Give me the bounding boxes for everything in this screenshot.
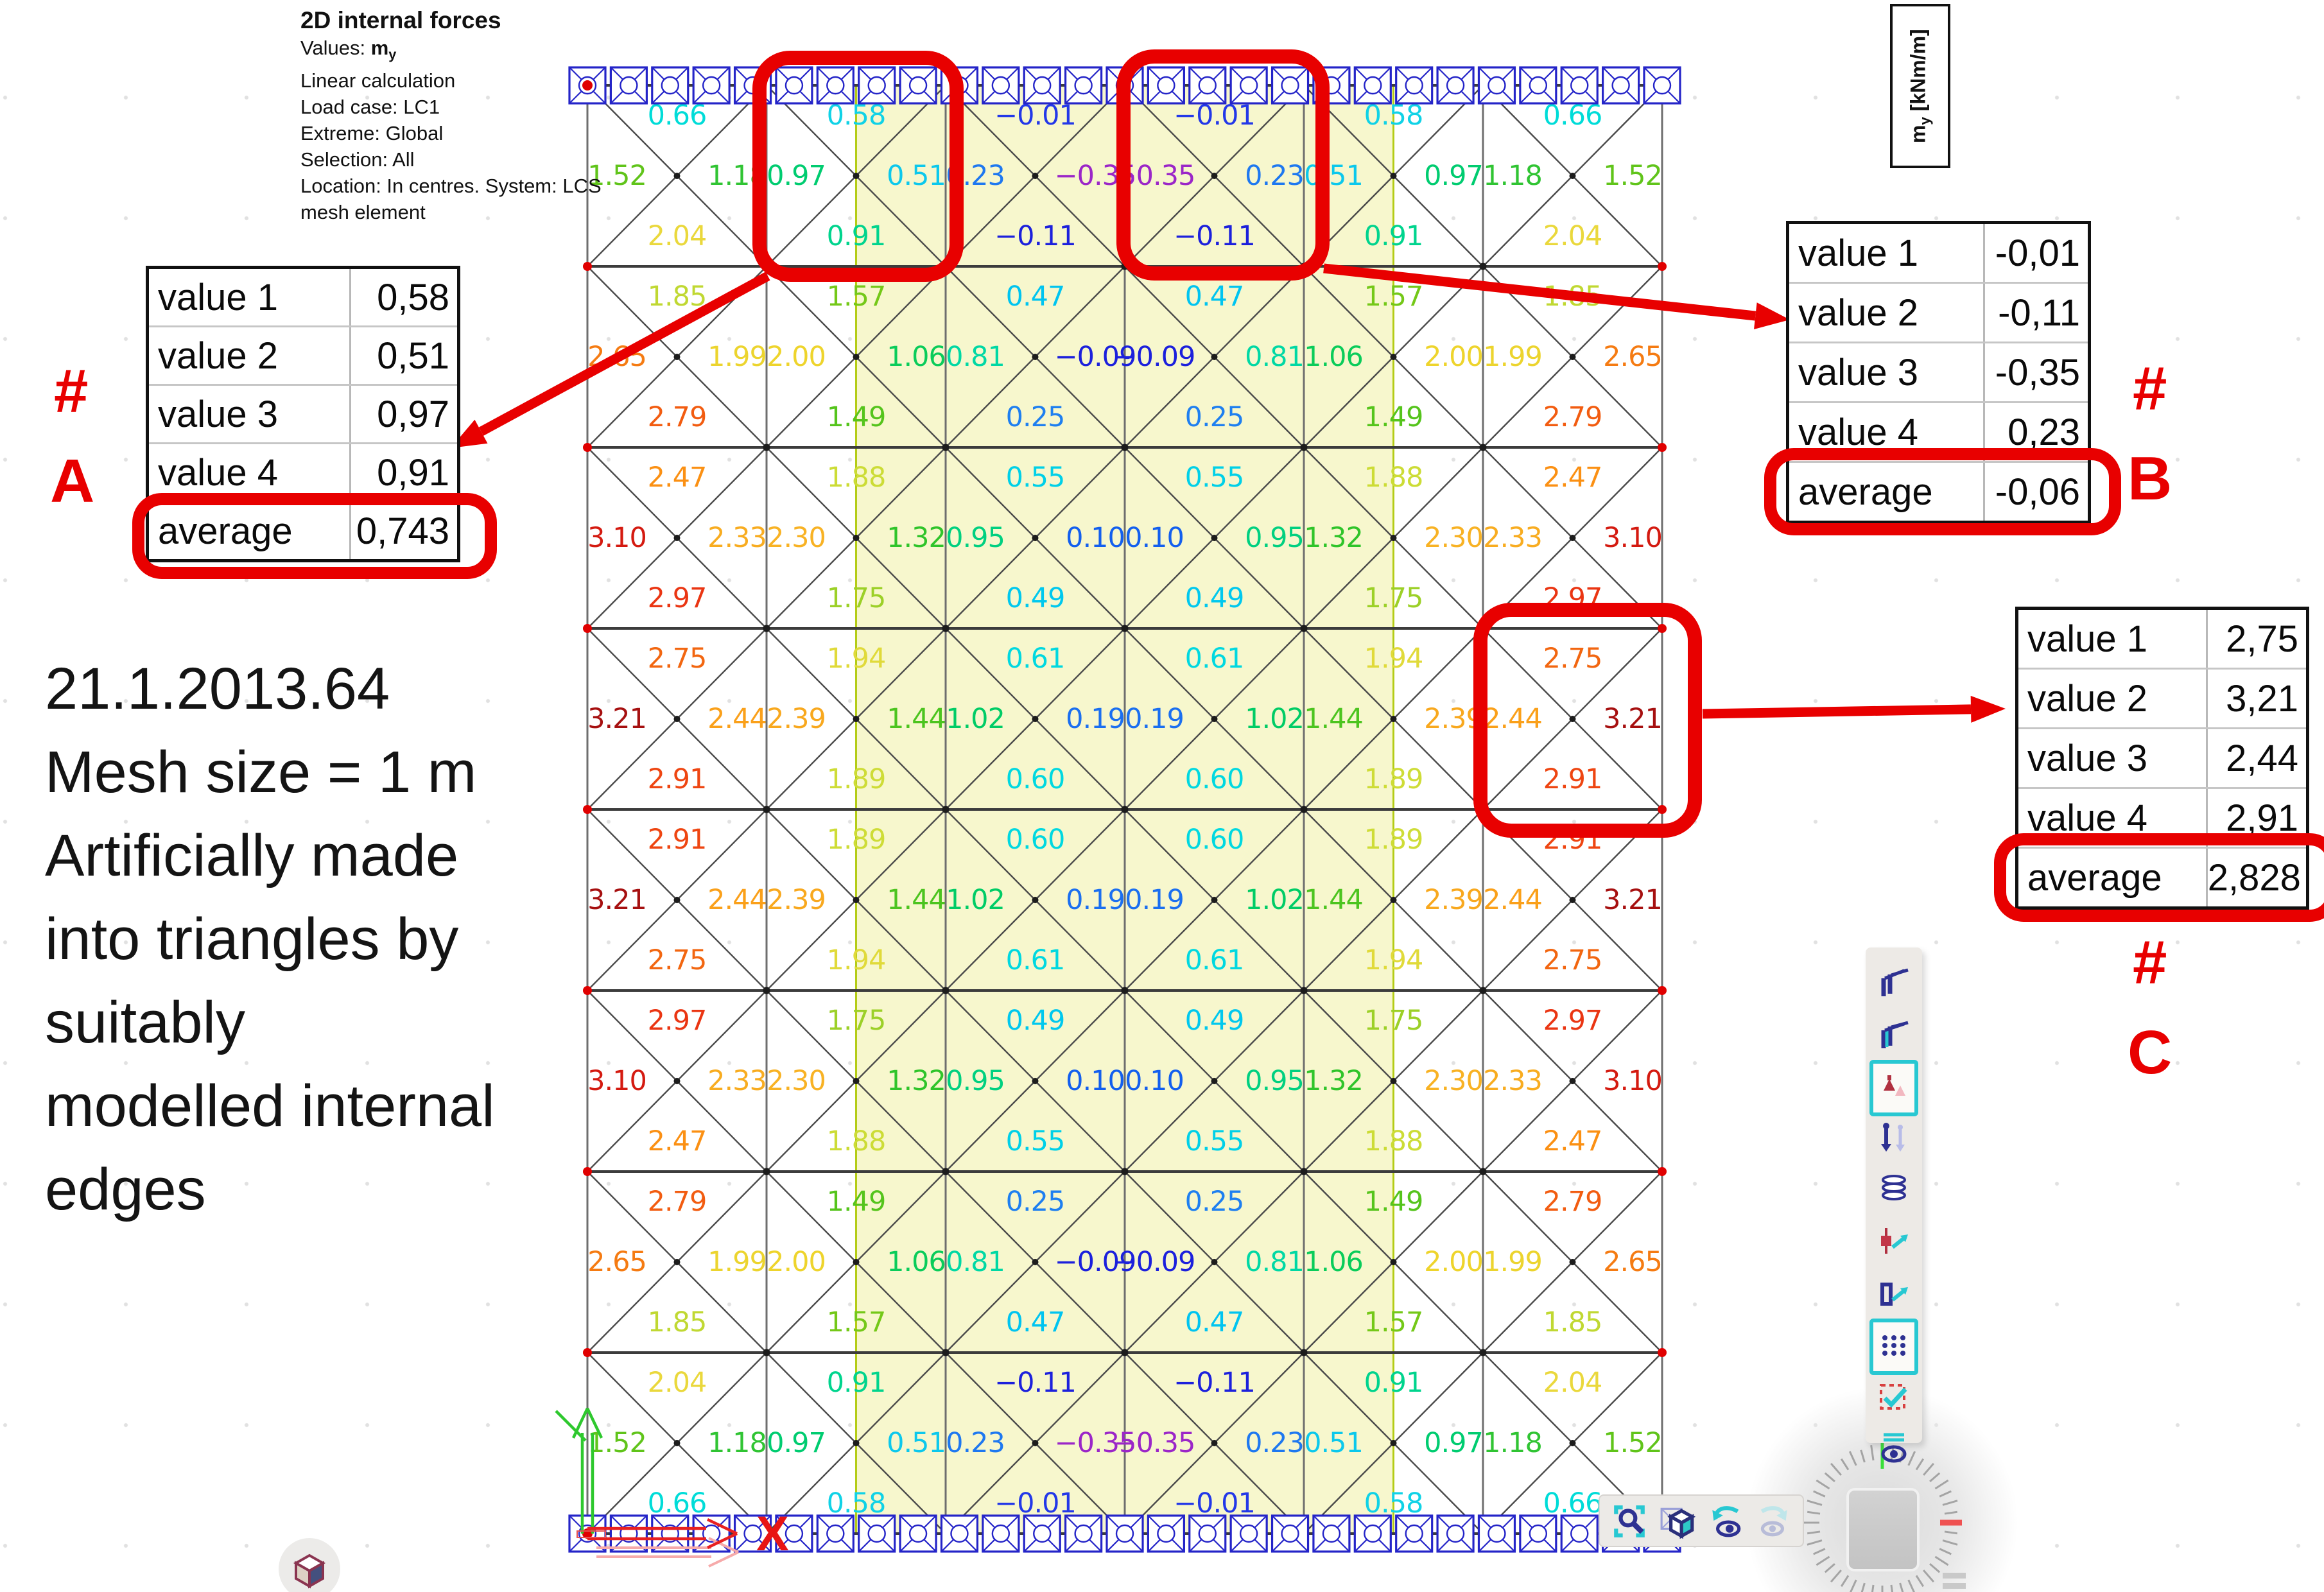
edge-node	[1658, 805, 1667, 814]
mesh-value: 1.99	[1483, 341, 1542, 373]
mesh-node	[674, 354, 681, 360]
mesh-value: 1.89	[1364, 763, 1423, 795]
mesh-value: 0.60	[1185, 763, 1244, 795]
load-arrows-icon[interactable]	[1876, 1120, 1912, 1155]
wheel-tick	[1945, 1532, 1957, 1534]
mesh-node	[674, 173, 681, 179]
line-support-icon	[652, 1516, 688, 1552]
mesh-value: 0.47	[1185, 1306, 1244, 1338]
edge-node	[583, 262, 592, 271]
mesh-node	[1301, 625, 1308, 632]
mesh-value: 2.79	[648, 1186, 707, 1218]
mesh-value: 0.19	[1066, 703, 1125, 735]
line-support-icon	[1437, 67, 1473, 103]
redo-eye-icon[interactable]	[1755, 1502, 1792, 1539]
edge-node	[583, 624, 592, 633]
table-row: value 20,51	[149, 325, 457, 384]
mesh-value: 0.51	[887, 160, 946, 192]
line-support-icon	[776, 67, 812, 103]
mesh-value: −0.09	[1114, 1246, 1195, 1278]
mesh-value: 1.18	[1483, 1427, 1542, 1459]
mesh-value: 1.06	[1304, 341, 1363, 373]
mesh-value: 0.81	[946, 1246, 1005, 1278]
mesh-value: 2.75	[1543, 944, 1602, 976]
value-cell: -0,11	[1985, 284, 2088, 342]
mesh-node	[1122, 987, 1129, 994]
value-cell: 0,97	[351, 386, 457, 442]
right-toolbar	[1866, 947, 1922, 1443]
mesh-value: 1.49	[827, 401, 886, 433]
mesh-value: 0.61	[1185, 944, 1244, 976]
marker-hash-b: #	[2133, 357, 2167, 421]
mesh-value: 0.49	[1006, 582, 1065, 614]
mesh-value: 0.51	[1304, 160, 1363, 192]
mesh-value: 1.57	[1364, 1306, 1423, 1338]
value-label-cell: value 2	[1789, 284, 1985, 342]
mesh-value: 2.33	[707, 522, 767, 554]
selection-check-icon[interactable]	[1876, 1378, 1912, 1414]
edge-node	[1658, 262, 1667, 271]
mesh-node	[1570, 716, 1576, 722]
mesh-value: 0.81	[946, 341, 1005, 373]
mesh-value: 1.85	[648, 281, 707, 313]
layers-icon[interactable]	[1876, 1171, 1912, 1207]
cube-3d-icon[interactable]	[1659, 1502, 1696, 1539]
mesh-node	[1391, 535, 1397, 541]
beam-profile-icon[interactable]	[1876, 964, 1912, 1000]
mesh-value: 3.10	[587, 522, 646, 554]
mesh-value: 2.00	[1424, 1246, 1483, 1278]
mesh-value: 2.30	[1424, 1065, 1483, 1097]
marker-letter-a: A	[50, 449, 94, 514]
edge-node	[583, 443, 592, 452]
mesh-value: 1.57	[827, 1306, 886, 1338]
mesh-node	[1122, 625, 1129, 632]
line-support-icon	[817, 67, 853, 103]
mesh-value: 2.79	[648, 401, 707, 433]
line-support-icon	[1272, 67, 1308, 103]
mesh-value: 0.97	[1424, 1427, 1483, 1459]
mesh-node	[1032, 1259, 1039, 1265]
mesh-value: 2.00	[767, 1246, 826, 1278]
mesh-value: 1.02	[946, 703, 1005, 735]
scrollbar-fragment[interactable]	[1943, 1583, 1966, 1589]
mesh-value: 2.44	[707, 703, 767, 735]
value-label-cell: value 3	[149, 386, 351, 442]
mesh-value: 2.30	[767, 1065, 826, 1097]
mesh-value: 2.39	[767, 703, 826, 735]
mesh-node	[853, 354, 860, 360]
mesh-value: 0.95	[1245, 1065, 1304, 1097]
value-cell: -0,01	[1985, 224, 2088, 282]
mesh-value: 2.97	[648, 1005, 707, 1037]
mesh-value: 3.21	[587, 703, 646, 735]
mesh-value: 2.04	[648, 220, 707, 252]
table-row: value 30,97	[149, 384, 457, 442]
table-row: value 2-0,11	[1789, 282, 2088, 342]
table-row: value 10,58	[149, 269, 457, 325]
mesh-value: 2.00	[767, 341, 826, 373]
value-label-cell: value 2	[2018, 670, 2208, 727]
mesh-value: 2.97	[1543, 1005, 1602, 1037]
mesh-node	[942, 1349, 950, 1356]
mesh-node	[1211, 716, 1218, 722]
mesh-value: 1.32	[887, 1065, 946, 1097]
mesh-value: 2.97	[648, 582, 707, 614]
mesh-value: 1.49	[1364, 1186, 1423, 1218]
mesh-value: 0.55	[1006, 1125, 1065, 1157]
mesh-value: 0.51	[1304, 1427, 1363, 1459]
mesh-value: 0.23	[1245, 1427, 1304, 1459]
support-icon[interactable]	[1876, 1068, 1912, 1103]
mesh-value: 0.61	[1006, 643, 1065, 675]
mesh-value: 0.97	[1424, 160, 1483, 192]
wheel-tick	[1939, 1491, 1951, 1496]
mesh-node	[1480, 1349, 1487, 1356]
visibility-icon[interactable]	[1876, 1430, 1912, 1466]
mesh-value: −0.11	[1174, 220, 1255, 252]
mesh-value: 1.02	[1245, 703, 1304, 735]
mesh-node	[763, 1349, 770, 1356]
mesh-value: 1.88	[827, 462, 886, 494]
mesh-value: 3.10	[1603, 1065, 1662, 1097]
mesh-value: 2.75	[1543, 643, 1602, 675]
line-support-icon	[1355, 1516, 1391, 1552]
mesh-value: 0.25	[1006, 1186, 1065, 1218]
results-values-line: Values: my	[300, 35, 602, 67]
edge-node	[583, 1167, 592, 1176]
average-highlight-ring-a	[132, 493, 497, 579]
mesh-value: 0.95	[1245, 522, 1304, 554]
wheel-tick	[1850, 1580, 1856, 1592]
edge-node	[1658, 1348, 1667, 1357]
edge-node	[583, 986, 592, 995]
scrollbar-fragment[interactable]	[1943, 1573, 1966, 1579]
mesh-value: 3.10	[1603, 522, 1662, 554]
mesh-node	[1122, 1349, 1129, 1356]
table-row: value 1-0,01	[1789, 224, 2088, 282]
edge-node	[1658, 624, 1667, 633]
mesh-node	[1391, 1440, 1397, 1446]
mesh-node	[1391, 716, 1397, 722]
axis-x-label: X	[756, 1506, 789, 1562]
mesh-value: 0.91	[827, 1367, 886, 1399]
mesh-value: 2.75	[648, 643, 707, 675]
mesh-node	[674, 1440, 681, 1446]
mesh-value: 2.33	[1483, 522, 1542, 554]
value-cell: 0,58	[351, 269, 457, 325]
mesh-node	[1211, 535, 1218, 541]
line-support-icon	[817, 1516, 853, 1552]
mesh-value: 1.49	[1364, 401, 1423, 433]
mesh-value: 1.94	[827, 643, 886, 675]
mesh-value: 1.94	[1364, 643, 1423, 675]
wheel-tick	[1916, 1575, 1923, 1586]
mesh-value: 1.88	[827, 1125, 886, 1157]
line-support-icon	[1272, 1516, 1308, 1552]
line-support-icon	[1396, 1516, 1432, 1552]
wheel-tick	[1850, 1451, 1856, 1466]
mesh-value: 2.91	[648, 763, 707, 795]
line-support-icon	[1024, 1516, 1060, 1552]
line-support-icon	[1437, 1516, 1473, 1552]
mesh-value: 0.97	[767, 160, 826, 192]
mesh-value: 0.10	[1066, 1065, 1125, 1097]
mesh-node	[763, 806, 770, 813]
mesh-value: −0.11	[994, 220, 1076, 252]
mesh-value: 2.79	[1543, 401, 1602, 433]
mesh-value: 0.81	[1245, 1246, 1304, 1278]
mesh-value: 2.75	[648, 944, 707, 976]
mesh-value: 1.94	[827, 944, 886, 976]
marker-letter-b: B	[2128, 447, 2172, 511]
results-line: Location: In centres. System: LCS	[300, 173, 602, 199]
mesh-node	[674, 716, 681, 722]
value-cell: 0,91	[351, 444, 457, 501]
mesh-node	[1480, 987, 1487, 994]
mesh-node	[1032, 354, 1039, 360]
wheel-tick	[1935, 1557, 1948, 1565]
mesh-value: 0.55	[1185, 462, 1244, 494]
wheel-tick	[1807, 1532, 1820, 1534]
results-line: Linear calculation	[300, 67, 602, 94]
mesh-value: 1.88	[1364, 1125, 1423, 1157]
mesh-node	[942, 806, 950, 813]
mesh-value: 0.60	[1185, 824, 1244, 856]
mesh-node	[1391, 897, 1397, 903]
mesh-node	[942, 625, 950, 632]
mesh-value: 1.32	[887, 522, 946, 554]
mesh-value: 0.60	[1006, 824, 1065, 856]
mesh-value: 0.81	[1245, 341, 1304, 373]
mesh-value: 1.85	[1543, 1306, 1602, 1338]
mesh-value: 2.33	[1483, 1065, 1542, 1097]
wheel-tick	[1807, 1541, 1822, 1545]
edge-node	[1658, 443, 1667, 452]
value-label-cell: value 1	[149, 269, 351, 325]
value-label-cell: value 4	[149, 444, 351, 501]
marker-letter-c: C	[2128, 1021, 2172, 1085]
line-support-icon	[1190, 1516, 1226, 1552]
mesh-value: 1.52	[1603, 1427, 1662, 1459]
wheel-center-handle[interactable]	[1849, 1491, 1917, 1569]
mesh-node	[1211, 173, 1218, 179]
line-support-icon	[941, 1516, 977, 1552]
mesh-node-icon[interactable]	[1876, 1223, 1912, 1259]
mesh-value: 1.06	[1304, 1246, 1363, 1278]
line-support-icon	[1066, 67, 1102, 103]
line-support-icon	[1520, 67, 1556, 103]
view-cube-icon	[287, 1546, 332, 1591]
line-support-icon	[1479, 1516, 1514, 1552]
mesh-value: 0.47	[1006, 281, 1065, 313]
mesh-node	[942, 987, 950, 994]
wheel-tick	[1930, 1473, 1939, 1482]
mesh-value: 3.21	[1603, 884, 1662, 916]
mesh-value: 0.60	[1006, 763, 1065, 795]
wheel-tick	[1814, 1549, 1825, 1554]
mesh-value: 1.75	[1364, 582, 1423, 614]
callout-arrow-c	[1703, 696, 2006, 723]
view-cube-button[interactable]	[279, 1538, 340, 1592]
zoom-selection-icon[interactable]	[1611, 1502, 1648, 1539]
mesh-node	[1480, 263, 1487, 270]
mesh-element-icon[interactable]	[1876, 1274, 1912, 1310]
mesh-value: −0.11	[1174, 1367, 1255, 1399]
mesh-value: 2.33	[707, 1065, 767, 1097]
mesh-node	[1391, 1259, 1397, 1265]
mesh-value: 0.19	[1125, 703, 1184, 735]
mesh-value: 2.00	[1424, 341, 1483, 373]
line-support-icon	[983, 1516, 1019, 1552]
mesh-node	[1301, 444, 1308, 451]
mesh-value: 1.32	[1304, 1065, 1363, 1097]
line-support-icon	[652, 67, 688, 103]
application-canvas: 0.661.521.182.040.580.970.510.91−0.010.2…	[0, 0, 2324, 1592]
line-support-icon	[1148, 1516, 1184, 1552]
mesh-value: 3.21	[1603, 703, 1662, 735]
mesh-value: 1.85	[648, 1306, 707, 1338]
wheel-tick	[1807, 1501, 1822, 1505]
mesh-node	[1211, 1259, 1218, 1265]
edge-node	[583, 1348, 592, 1357]
mesh-value: 2.47	[1543, 1125, 1602, 1157]
mesh-value: 3.21	[587, 884, 646, 916]
mesh-value: 2.44	[707, 884, 767, 916]
mesh-value: 2.30	[1424, 522, 1483, 554]
table-row: value 32,44	[2018, 727, 2306, 787]
wheel-tick	[1871, 1445, 1873, 1460]
wheel-tick	[1900, 1583, 1904, 1592]
view-toolbar	[1599, 1494, 1804, 1547]
mesh-node	[1032, 1078, 1039, 1084]
results-line: Selection: All	[300, 146, 602, 173]
slide-note: 21.1.2013.64Mesh size = 1 mArtificially …	[45, 647, 495, 1231]
wheel-tick	[1841, 1459, 1848, 1470]
mesh-value: 1.89	[827, 763, 886, 795]
mesh-value: 0.23	[1245, 160, 1304, 192]
line-support-icon	[1561, 1516, 1597, 1552]
value-label-cell: value 3	[2018, 729, 2208, 787]
line-support-icon	[983, 67, 1019, 103]
mesh-node	[1570, 354, 1576, 360]
line-support-icon	[1107, 1516, 1143, 1552]
wheel-tick	[1816, 1557, 1829, 1565]
mesh-node	[1301, 806, 1308, 813]
mesh-node	[853, 535, 860, 541]
mesh-value: 1.18	[707, 1427, 767, 1459]
wheel-tick	[1909, 1580, 1915, 1592]
mesh-grid-icon[interactable]	[1876, 1326, 1912, 1362]
mesh-value: 3.10	[587, 1065, 646, 1097]
value-cell: 2,75	[2208, 610, 2306, 668]
mesh-value: 1.44	[1304, 703, 1363, 735]
mesh-node	[763, 987, 770, 994]
mesh-value: 2.04	[648, 1367, 707, 1399]
mesh-value: 2.65	[1603, 341, 1662, 373]
mesh-value: 2.65	[1603, 1246, 1662, 1278]
line-support-icon	[859, 67, 895, 103]
wheel-tick	[1871, 1585, 1873, 1592]
mesh-value: 2.39	[1424, 884, 1483, 916]
mesh-value: 0.23	[946, 1427, 1005, 1459]
wheel-tick	[1923, 1464, 1934, 1475]
wheel-tick	[1814, 1491, 1825, 1496]
mesh-node	[942, 1168, 950, 1175]
wheel-tick	[1943, 1501, 1957, 1505]
wheel-tick	[1816, 1480, 1829, 1489]
mesh-value: 1.02	[1245, 884, 1304, 916]
unit-label-box: my [kNm/m]	[1890, 4, 1950, 168]
undo-eye-icon[interactable]	[1707, 1502, 1744, 1539]
mesh-value: 1.44	[1304, 884, 1363, 916]
value-label-cell: value 1	[1789, 224, 1985, 282]
mesh-node	[1391, 173, 1397, 179]
wheel-tick	[1923, 1570, 1934, 1582]
line-support-icon	[900, 67, 936, 103]
table-row: value 40,91	[149, 442, 457, 501]
mesh-value: 2.79	[1543, 1186, 1602, 1218]
mesh-value: 2.91	[1543, 763, 1602, 795]
mesh-value: 2.44	[1483, 884, 1542, 916]
mesh-value: 0.51	[887, 1427, 946, 1459]
results-line: mesh element	[300, 199, 602, 225]
mesh-value: 1.99	[707, 341, 767, 373]
line-support-icon	[1024, 67, 1060, 103]
value-cell: 3,21	[2208, 670, 2306, 727]
mesh-node	[942, 444, 950, 451]
wheel-tick	[1939, 1549, 1951, 1554]
wheel-tick	[1807, 1512, 1820, 1514]
mesh-value: 0.91	[1364, 220, 1423, 252]
mesh-value: 2.39	[767, 884, 826, 916]
mesh-node	[1480, 1168, 1487, 1175]
line-support-icon	[611, 1516, 646, 1552]
line-support-icon	[1561, 67, 1597, 103]
results-title: 2D internal forces	[300, 6, 602, 35]
line-support-icon	[1603, 67, 1639, 103]
value-label-cell: value 1	[2018, 610, 2208, 668]
mesh-value: 2.47	[1543, 462, 1602, 494]
mesh-value: 0.55	[1185, 1125, 1244, 1157]
mesh-value: 0.10	[1125, 1065, 1184, 1097]
mesh-value: 0.55	[1006, 462, 1065, 494]
mesh-node	[853, 173, 860, 179]
wheel-tick	[1943, 1541, 1957, 1545]
table-row: value 23,21	[2018, 668, 2306, 727]
results-line: Load case: LC1	[300, 94, 602, 120]
mesh-value: 1.06	[887, 341, 946, 373]
line-support-icon	[611, 67, 646, 103]
value-cell: 2,44	[2208, 729, 2306, 787]
line-support-icon	[1148, 67, 1184, 103]
mesh-value: 1.75	[1364, 1005, 1423, 1037]
mesh-value: 2.65	[587, 1246, 646, 1278]
mesh-node	[1570, 535, 1576, 541]
value-cell: -0,35	[1985, 343, 2088, 401]
wheel-tick	[1930, 1564, 1939, 1572]
mesh-value: 1.99	[707, 1246, 767, 1278]
mesh-node	[1122, 1168, 1129, 1175]
beam-profile-teal-icon[interactable]	[1876, 1016, 1912, 1052]
line-support-icon	[1190, 67, 1226, 103]
wheel-tick	[1831, 1570, 1841, 1582]
line-support-icon	[1644, 67, 1680, 103]
unit-label: my [kNm/m]	[1907, 29, 1934, 143]
line-support-icon	[1231, 1516, 1267, 1552]
line-support-icon	[900, 1516, 936, 1552]
mesh-value: 0.95	[946, 522, 1005, 554]
